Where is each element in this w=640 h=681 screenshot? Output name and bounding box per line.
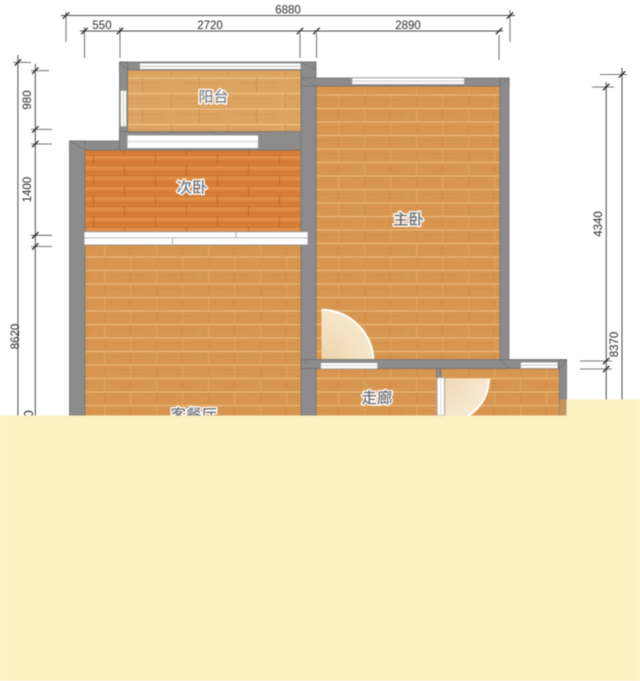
svg-text:8620: 8620: [10, 324, 22, 350]
svg-text:1400: 1400: [22, 177, 34, 203]
svg-text:4340: 4340: [593, 211, 605, 237]
svg-text:2890: 2890: [395, 20, 421, 32]
svg-text:8370: 8370: [609, 332, 621, 358]
svg-text:980: 980: [22, 90, 34, 109]
svg-text:550: 550: [92, 20, 111, 32]
svg-text:6880: 6880: [275, 5, 301, 17]
svg-text:2720: 2720: [197, 20, 223, 32]
